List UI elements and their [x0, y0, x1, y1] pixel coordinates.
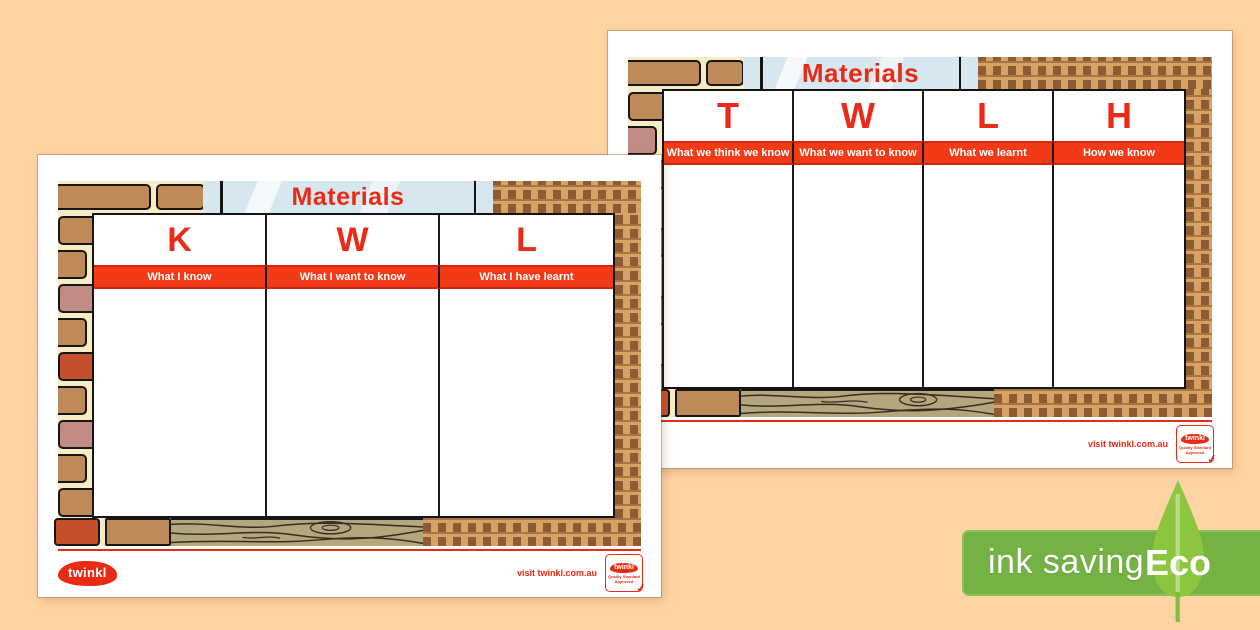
- right-brick-pattern: [1186, 89, 1212, 389]
- quality-stamp: twinkl Quality Standard Approved ✓: [605, 554, 643, 592]
- brick-pattern-decoration: [423, 518, 641, 546]
- writing-space: [924, 165, 1054, 387]
- wood-grain-graphic: [171, 518, 423, 546]
- twinkl-logo-icon: twinkl: [610, 563, 638, 573]
- brick-graphic: [54, 518, 100, 546]
- writing-space: [664, 165, 794, 387]
- brick-graphic: [706, 60, 743, 86]
- twinkl-resource-preview: { "canvas": { "background_color": "#FFD4…: [0, 0, 1260, 630]
- checkmark-icon: ✓: [1206, 451, 1218, 466]
- brick-graphic: [156, 184, 203, 210]
- eco-label: Eco: [1140, 530, 1216, 596]
- brick-pattern-decoration: [978, 57, 1212, 89]
- brick-graphic: [58, 318, 87, 347]
- page-title: Materials: [802, 58, 919, 89]
- ink-saving-label: ink saving: [988, 530, 1144, 596]
- brick-graphic: [58, 386, 87, 415]
- page-content: Materials T W L H What we think: [628, 57, 1212, 422]
- header-band: Materials: [58, 181, 641, 213]
- brick-graphic: [58, 352, 92, 381]
- column-subtitle: What I know: [94, 265, 267, 289]
- column-letter-w: W: [794, 91, 924, 141]
- twinkl-logo-icon: twinkl: [1181, 434, 1209, 444]
- brick-graphic: [105, 518, 171, 546]
- footer-rule: [58, 549, 641, 552]
- wood-grain-graphic: [741, 389, 994, 417]
- writing-space: [1054, 165, 1184, 387]
- column-subtitle: What we think we know: [664, 141, 794, 165]
- right-brick-pattern: [615, 213, 641, 518]
- brick-graphic: [628, 60, 701, 86]
- left-brick-column: [58, 213, 92, 518]
- page-content: Materials K W L What I know Wha: [58, 181, 641, 551]
- kwl-table: K W L What I know What I want to know Wh…: [92, 213, 615, 518]
- twinkl-url-text: visit twinkl.com.au: [517, 568, 597, 578]
- column-subtitle: How we know: [1054, 141, 1184, 165]
- brick-graphic: [58, 284, 92, 313]
- brick-graphic: [58, 184, 151, 210]
- checkmark-icon: ✓: [635, 580, 647, 595]
- page-footer: twinkl visit twinkl.com.au twinkl Qualit…: [58, 553, 643, 593]
- twinkl-logo: twinkl: [58, 561, 117, 586]
- brick-graphic: [58, 420, 92, 449]
- quality-stamp: twinkl Quality Standard Approved ✓: [1176, 425, 1214, 463]
- column-letter-w: W: [267, 215, 440, 265]
- column-subtitle: What we want to know: [794, 141, 924, 165]
- brick-pattern-decoration: [994, 389, 1212, 417]
- header-band: Materials: [628, 57, 1212, 89]
- bottom-decoration-strip: [628, 389, 1212, 417]
- column-subtitle: What we learnt: [924, 141, 1054, 165]
- column-letter-l: L: [440, 215, 613, 265]
- brick-graphic: [58, 488, 92, 517]
- brick-graphic: [58, 216, 92, 245]
- writing-space: [94, 289, 267, 516]
- table-band: K W L What I know What I want to know Wh…: [58, 213, 641, 518]
- bottom-decoration-strip: [58, 518, 641, 546]
- brick-graphic: [675, 389, 741, 417]
- title-banner: Materials: [203, 181, 493, 213]
- header-bricks-decoration: [58, 181, 203, 213]
- writing-space: [794, 165, 924, 387]
- brick-graphic: [58, 454, 87, 483]
- column-subtitle: What I have learnt: [440, 265, 613, 289]
- ink-saving-eco-badge: ink saving Eco: [962, 478, 1260, 628]
- worksheet-page-kwl: Materials K W L What I know Wha: [38, 155, 661, 597]
- writing-space: [267, 289, 440, 516]
- header-bricks-decoration: [628, 57, 743, 89]
- title-banner: Materials: [743, 57, 978, 89]
- brick-graphic: [58, 250, 87, 279]
- page-footer: visit twinkl.com.au twinkl Quality Stand…: [628, 424, 1214, 464]
- column-subtitle: What I want to know: [267, 265, 440, 289]
- brick-graphic: [628, 92, 662, 121]
- column-letter-l: L: [924, 91, 1054, 141]
- brick-pattern-decoration: [493, 181, 641, 213]
- column-letter-k: K: [94, 215, 267, 265]
- twlh-table: T W L H What we think we know What we wa…: [662, 89, 1186, 389]
- footer-rule: [628, 420, 1212, 423]
- column-letter-h: H: [1054, 91, 1184, 141]
- worksheet-page-twlh: Materials T W L H What we think: [608, 31, 1232, 468]
- brick-graphic: [628, 126, 657, 155]
- page-title: Materials: [292, 183, 405, 212]
- writing-space: [440, 289, 613, 516]
- table-band: T W L H What we think we know What we wa…: [628, 89, 1212, 389]
- column-letter-t: T: [664, 91, 794, 141]
- twinkl-url-text: visit twinkl.com.au: [1088, 439, 1168, 449]
